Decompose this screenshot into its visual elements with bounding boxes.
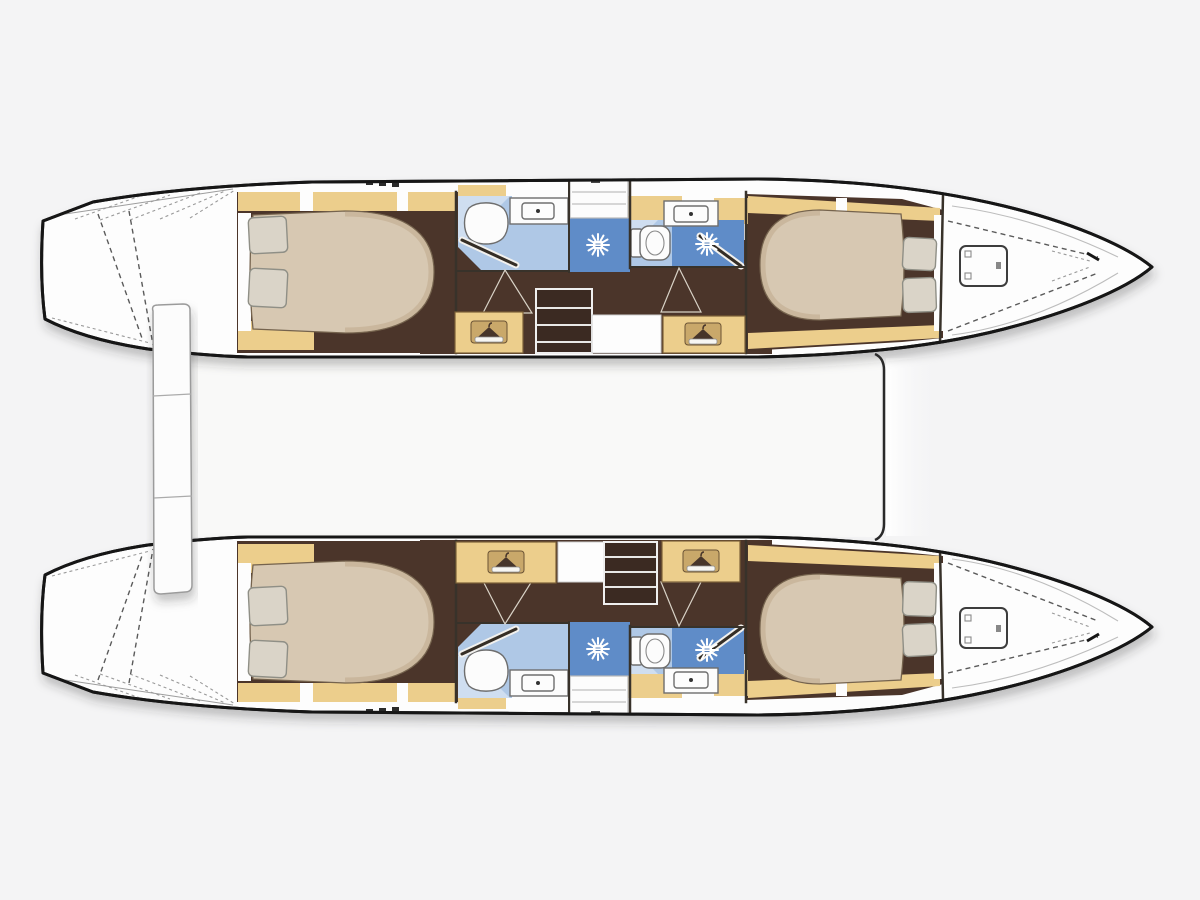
lower-hull xyxy=(42,537,1152,717)
stern-side-plank xyxy=(153,304,192,594)
bridgedeck-edge-fade xyxy=(886,358,941,536)
bridgedeck-area xyxy=(165,357,881,537)
stern-plank-group xyxy=(153,304,192,594)
passage-floor-panel xyxy=(592,315,661,353)
drawer-steps-unit xyxy=(536,289,592,353)
passage-floor-panel xyxy=(558,542,604,582)
catamaran-floorplan-stage xyxy=(0,0,1200,900)
catamaran-floorplan xyxy=(0,0,1200,900)
upper-hull xyxy=(42,177,1152,357)
